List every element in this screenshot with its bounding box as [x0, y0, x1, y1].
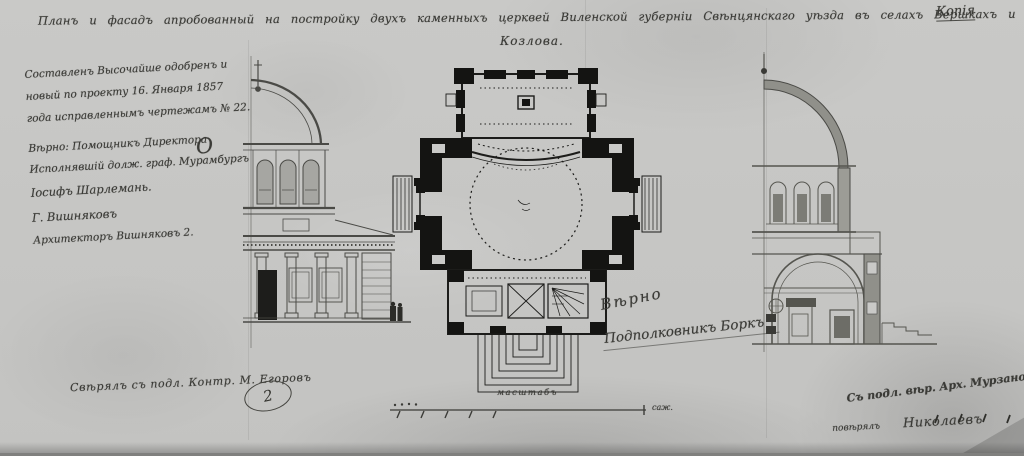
- side-room: [466, 286, 502, 316]
- left-elevation-drawing: [243, 56, 413, 348]
- dome: [251, 80, 321, 144]
- entrance-steps: [478, 334, 578, 392]
- dome-finial: [254, 60, 262, 91]
- left-portico-steps: [393, 176, 422, 232]
- interior-arch: [772, 254, 864, 344]
- corner-pier-rusticated: [362, 253, 391, 319]
- scale-bar: [388, 400, 658, 422]
- right-portico-steps: [632, 176, 661, 232]
- drum-arcade: [766, 182, 838, 224]
- apse-colonnade-arc: [472, 144, 580, 166]
- main-entablature: [243, 236, 395, 250]
- scale-caption: масштабъ: [497, 388, 558, 398]
- wall-panels: [289, 268, 342, 302]
- dome-section-shell: [764, 80, 848, 168]
- sheet-number: 2: [261, 386, 274, 406]
- drum-with-arched-windows: [243, 144, 329, 208]
- stair-x-flight: [508, 284, 544, 318]
- exterior-side-steps: [882, 323, 932, 344]
- entrance-door: [258, 270, 277, 320]
- title-line-2: Козлова.: [500, 34, 564, 48]
- verifier-label: повѣрялъ: [832, 421, 880, 433]
- approval-note: Составленъ Высочайше одобренъ и новый по…: [24, 52, 257, 251]
- main-cornice: [752, 232, 882, 254]
- altar-symbol: [518, 96, 534, 109]
- scanned-architectural-drawing: Копія Планъ и фасадъ апробованный на пос…: [0, 0, 1024, 456]
- bottom-right-signature: Съ подл. вѣр. Арх. Мурзановъ: [846, 368, 1024, 405]
- ink-tick-marks: [930, 412, 1020, 426]
- iconostasis-furnishings: [766, 298, 854, 344]
- drum-base-cornice: [243, 208, 393, 235]
- title-line-1: Планъ и фасадъ апробованный на постройку…: [38, 6, 1024, 27]
- stair-fan-winder: [548, 284, 588, 318]
- ink-flourish: О: [195, 133, 215, 159]
- dome-circle-dashed: [470, 148, 582, 260]
- right-section-drawing: [752, 52, 937, 352]
- dome-finial: [761, 54, 767, 74]
- side-wall-section: [864, 254, 880, 344]
- scale-unit-label: саж.: [652, 403, 673, 412]
